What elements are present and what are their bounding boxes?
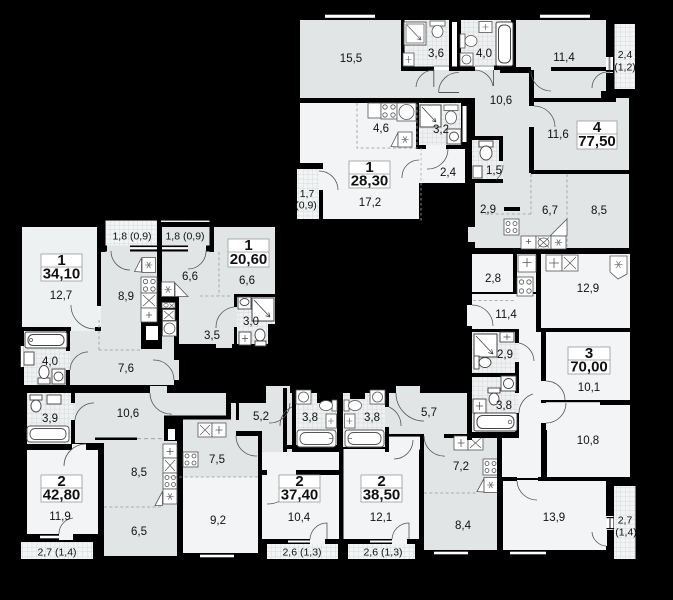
svg-text:10,4: 10,4 bbox=[288, 512, 311, 524]
svg-text:10,1: 10,1 bbox=[578, 382, 600, 394]
svg-text:2,4: 2,4 bbox=[440, 167, 457, 179]
svg-text:2,8: 2,8 bbox=[485, 273, 501, 285]
svg-text:(1,2): (1,2) bbox=[614, 62, 636, 74]
svg-text:1,7: 1,7 bbox=[300, 188, 315, 200]
svg-text:3,9: 3,9 bbox=[42, 413, 58, 425]
svg-text:8,5: 8,5 bbox=[131, 467, 147, 479]
svg-text:5,2: 5,2 bbox=[253, 411, 269, 423]
svg-text:3,8: 3,8 bbox=[302, 412, 318, 424]
svg-text:3,8: 3,8 bbox=[496, 400, 512, 412]
svg-text:6,7: 6,7 bbox=[542, 205, 558, 217]
svg-text:7,2: 7,2 bbox=[453, 461, 469, 473]
svg-text:3,8: 3,8 bbox=[364, 412, 380, 424]
svg-text:17,2: 17,2 bbox=[359, 197, 381, 209]
svg-text:12,9: 12,9 bbox=[577, 283, 599, 295]
svg-text:3,5: 3,5 bbox=[204, 330, 220, 342]
svg-text:1,8 (0,9): 1,8 (0,9) bbox=[165, 231, 204, 243]
svg-text:6,6: 6,6 bbox=[182, 271, 198, 283]
svg-text:12,1: 12,1 bbox=[370, 512, 392, 524]
svg-text:7,6: 7,6 bbox=[118, 363, 134, 375]
svg-text:8,9: 8,9 bbox=[118, 291, 134, 303]
svg-text:11,6: 11,6 bbox=[547, 129, 569, 141]
svg-text:4,0: 4,0 bbox=[476, 48, 492, 60]
svg-text:10,8: 10,8 bbox=[577, 435, 599, 447]
svg-text:37,40: 37,40 bbox=[281, 487, 319, 504]
svg-text:77,50: 77,50 bbox=[578, 133, 616, 150]
svg-text:34,10: 34,10 bbox=[43, 266, 81, 283]
svg-text:8,4: 8,4 bbox=[455, 520, 472, 532]
svg-text:12,7: 12,7 bbox=[50, 290, 72, 302]
svg-text:28,30: 28,30 bbox=[351, 173, 389, 190]
svg-text:20,60: 20,60 bbox=[230, 251, 268, 268]
svg-text:38,50: 38,50 bbox=[363, 487, 401, 504]
svg-text:3,2: 3,2 bbox=[433, 124, 449, 136]
svg-text:5,7: 5,7 bbox=[421, 407, 437, 419]
svg-text:2,6 (1,3): 2,6 (1,3) bbox=[363, 547, 402, 559]
svg-text:(0,9): (0,9) bbox=[295, 200, 317, 212]
svg-text:70,00: 70,00 bbox=[570, 359, 608, 376]
svg-text:10,6: 10,6 bbox=[117, 408, 139, 420]
svg-text:2,6 (1,3): 2,6 (1,3) bbox=[282, 547, 321, 559]
svg-text:2,9: 2,9 bbox=[497, 349, 513, 361]
svg-text:11,4: 11,4 bbox=[553, 52, 575, 64]
svg-text:7,5: 7,5 bbox=[209, 454, 225, 466]
svg-text:2,7 (1,4): 2,7 (1,4) bbox=[37, 547, 76, 559]
svg-text:4,6: 4,6 bbox=[373, 123, 389, 135]
svg-text:11,4: 11,4 bbox=[495, 309, 517, 321]
svg-text:6,6: 6,6 bbox=[239, 275, 255, 287]
svg-text:2,7: 2,7 bbox=[618, 515, 633, 527]
svg-text:(1,4): (1,4) bbox=[615, 527, 637, 539]
svg-text:13,9: 13,9 bbox=[543, 512, 565, 524]
svg-text:1,8 (0,9): 1,8 (0,9) bbox=[112, 231, 151, 243]
svg-text:42,80: 42,80 bbox=[43, 487, 81, 504]
svg-text:15,5: 15,5 bbox=[340, 53, 362, 65]
svg-text:8,5: 8,5 bbox=[591, 205, 607, 217]
svg-text:2,9: 2,9 bbox=[480, 204, 496, 216]
svg-text:3,6: 3,6 bbox=[428, 48, 444, 60]
svg-text:2,4: 2,4 bbox=[618, 49, 633, 61]
svg-text:6,5: 6,5 bbox=[131, 526, 147, 538]
svg-text:9,2: 9,2 bbox=[210, 515, 226, 527]
svg-text:10,6: 10,6 bbox=[490, 95, 512, 107]
svg-text:11,9: 11,9 bbox=[49, 511, 71, 523]
svg-text:3,0: 3,0 bbox=[243, 316, 259, 328]
svg-text:1,5: 1,5 bbox=[486, 165, 502, 177]
svg-text:4,0: 4,0 bbox=[42, 356, 58, 368]
